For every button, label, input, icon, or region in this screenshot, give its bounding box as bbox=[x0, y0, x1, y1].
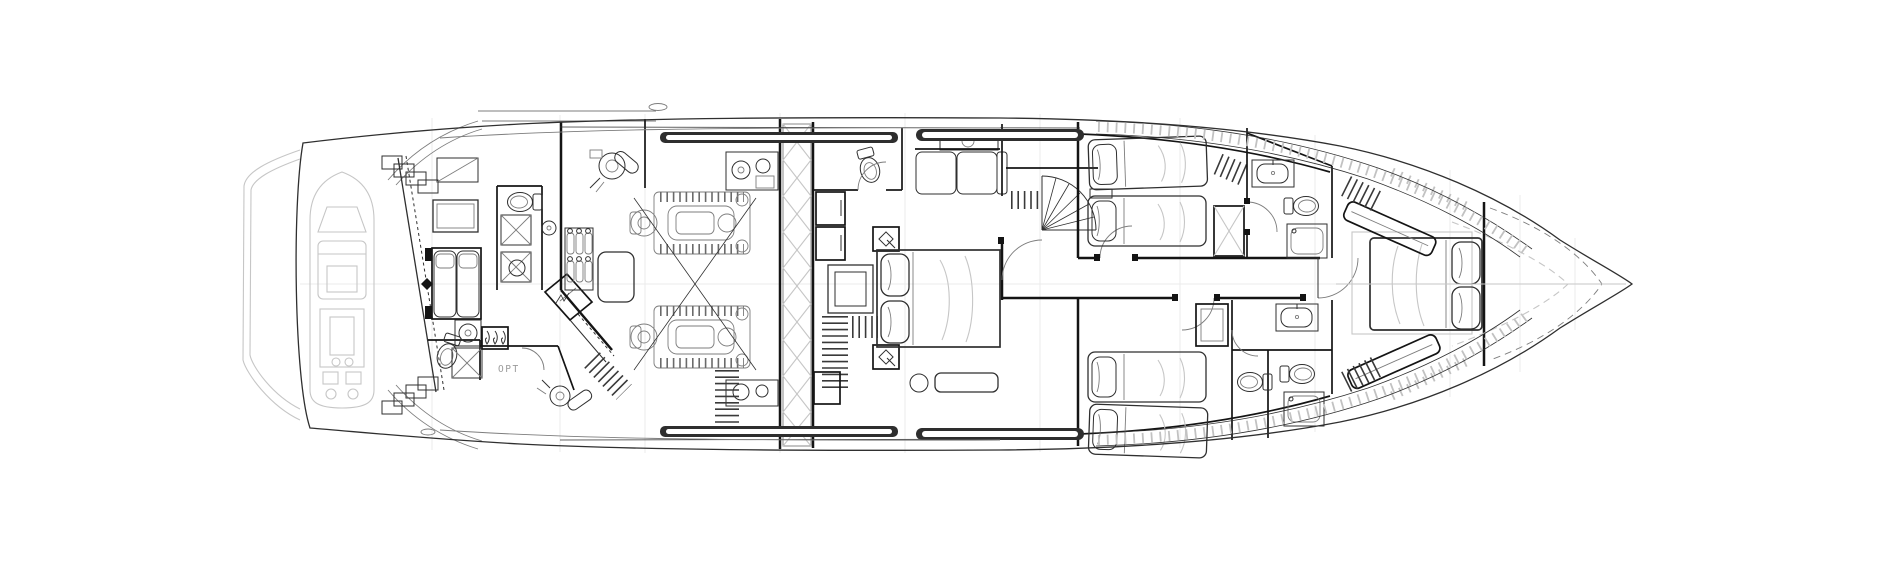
hull-ladder bbox=[1346, 186, 1378, 202]
shower-icon bbox=[452, 348, 482, 378]
pouf-stool bbox=[910, 374, 928, 392]
side-seat bbox=[1342, 200, 1438, 257]
construction-grid bbox=[300, 113, 1575, 453]
nightstand-top bbox=[873, 227, 899, 251]
aft-deck-overhang bbox=[388, 104, 667, 450]
crew-desk bbox=[433, 200, 478, 232]
opt-label: OPT bbox=[498, 364, 520, 375]
workbench bbox=[598, 252, 634, 302]
toilet-icon bbox=[1284, 197, 1319, 216]
engine-starboard bbox=[630, 306, 750, 368]
main-staircase bbox=[1006, 168, 1098, 230]
yacht-deck-plan-canvas: OPT bbox=[0, 0, 1900, 570]
hull-window-strip bbox=[1392, 362, 1466, 396]
toilet-icon bbox=[508, 193, 543, 212]
nightstand-bottom bbox=[873, 345, 899, 369]
wardrobe bbox=[816, 192, 845, 260]
foot-bench bbox=[935, 373, 998, 392]
pump-unit-top bbox=[726, 152, 778, 190]
sink-icon bbox=[1252, 160, 1294, 187]
toilet-icon bbox=[434, 332, 463, 371]
fuel-tank-bulkhead bbox=[783, 122, 813, 448]
crew-stairs bbox=[592, 360, 624, 392]
tender-ghost bbox=[310, 172, 374, 408]
toilet-icon bbox=[1280, 365, 1315, 384]
cleat-icon bbox=[649, 104, 667, 111]
master-sofa bbox=[915, 149, 1007, 194]
door-swing bbox=[1232, 330, 1258, 356]
master-bed bbox=[877, 250, 1000, 347]
twin-bed bbox=[1088, 404, 1208, 458]
crew-bathroom bbox=[428, 320, 482, 380]
cleat-icon bbox=[421, 429, 435, 435]
door-swing bbox=[1002, 240, 1042, 280]
master-stateroom bbox=[813, 124, 1042, 404]
guest-cabin-port bbox=[1080, 128, 1330, 258]
door-swing bbox=[1247, 202, 1277, 232]
sink-icon bbox=[1276, 304, 1318, 331]
bottle-rack bbox=[565, 228, 593, 290]
guest-bathroom-port bbox=[1244, 133, 1332, 258]
swim-platform bbox=[243, 150, 300, 420]
shower-icon bbox=[1287, 224, 1327, 258]
toilet-icon bbox=[855, 146, 882, 184]
shower-icon bbox=[501, 215, 531, 245]
toilet-icon bbox=[1238, 373, 1273, 392]
hull-ladder bbox=[1346, 366, 1378, 382]
engine-port bbox=[630, 192, 750, 254]
shower-icon bbox=[1284, 392, 1324, 426]
extractor-icon bbox=[542, 221, 556, 235]
hull-ladder bbox=[1218, 164, 1246, 176]
twin-bed bbox=[1088, 352, 1206, 402]
yacht-lower-deck-plan: OPT bbox=[0, 0, 1900, 570]
vanity-desk bbox=[828, 265, 873, 313]
stabilizer-unit bbox=[590, 149, 641, 192]
door-swing bbox=[1182, 298, 1214, 330]
twin-bed bbox=[1088, 196, 1206, 246]
jet-tender-toy bbox=[537, 380, 594, 412]
